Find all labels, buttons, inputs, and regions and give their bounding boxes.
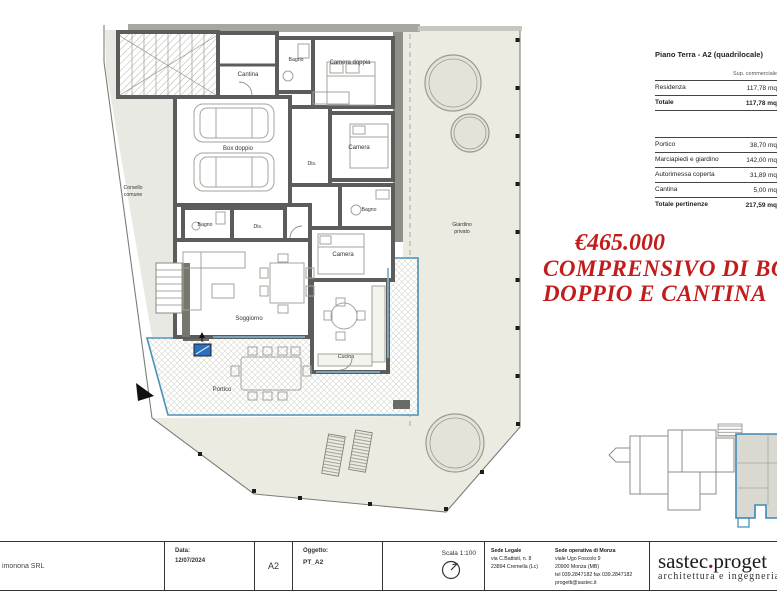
drawing-sheet: Cantina Bagno Camera doppia Box doppio C… bbox=[0, 0, 777, 600]
table-row: Marciapiedi e giardino 142,00 mq bbox=[655, 153, 777, 168]
date-label: Data: bbox=[175, 548, 254, 554]
date-value: 12/07/2024 bbox=[175, 558, 254, 564]
sede-legale: Sede Legale via C.Battisti, n. 8 23894 C… bbox=[491, 547, 555, 590]
table-row: Residenza 117,78 mq bbox=[655, 81, 777, 96]
garden-wall-band bbox=[418, 26, 522, 31]
company-logo: sastec.proget bbox=[658, 551, 777, 571]
price-amount: €465.000 bbox=[575, 231, 777, 256]
room-dis-right bbox=[290, 107, 330, 185]
scale-cell: Scala 1:100 bbox=[383, 542, 485, 590]
label-cucina: Cucina bbox=[338, 354, 354, 360]
sede-operativa: Sede operativa di Monza viale Ugo Foscol… bbox=[555, 547, 638, 590]
label-camera-low: Camera bbox=[332, 252, 354, 258]
table-row: Autorimessa coperta 31,89 mq bbox=[655, 168, 777, 183]
north-arrow bbox=[136, 383, 154, 401]
label-corsello-2: comune bbox=[124, 192, 143, 198]
object-value: PT_A2 bbox=[303, 559, 382, 566]
key-plan bbox=[609, 424, 777, 527]
room-soggiorno bbox=[175, 240, 310, 337]
label-dis-right: Dis. bbox=[308, 161, 317, 167]
label-camera-right: Camera bbox=[348, 145, 370, 151]
date-cell: Data: 12/07/2024 bbox=[165, 542, 255, 590]
company-tagline: architettura e ingegneria bbox=[658, 571, 777, 582]
label-bagno-mid: Bagno bbox=[197, 222, 212, 228]
sheet-cell: A2 bbox=[255, 542, 293, 590]
logo-cell: sastec.proget architettura e ingegneria bbox=[650, 542, 777, 590]
stairwell-hatch bbox=[120, 34, 216, 95]
sede-legale-title: Sede Legale bbox=[491, 547, 549, 555]
kitchen-counter bbox=[372, 286, 385, 362]
object-label: Oggetto: bbox=[303, 548, 382, 554]
scale-label: Scala 1:100 bbox=[383, 550, 476, 557]
table-row: Totale 117,78 mq bbox=[655, 96, 777, 111]
north-arrow-icon bbox=[383, 559, 462, 583]
client-name: imonona SRL bbox=[2, 563, 44, 570]
table-row: Portico 38,70 mq bbox=[655, 137, 777, 153]
area-table: Piano Terra - A2 (quadrilocale) Sup. com… bbox=[655, 50, 777, 212]
label-cantina: Cantina bbox=[238, 72, 259, 78]
key-plan-unit bbox=[736, 434, 777, 518]
label-camera-doppia: Camera doppia bbox=[329, 60, 371, 66]
label-box-doppio: Box doppio bbox=[223, 146, 254, 152]
label-giardino-2: privato bbox=[454, 229, 470, 235]
client-cell: imonona SRL bbox=[0, 542, 165, 590]
table-col-header: Sup. commerciale bbox=[655, 71, 777, 81]
label-corsello-1: Corsello bbox=[123, 185, 142, 191]
object-cell: Oggetto: PT_A2 bbox=[293, 542, 383, 590]
company-address-cell: Sede Legale via C.Battisti, n. 8 23894 C… bbox=[485, 542, 650, 590]
label-portico: Portico bbox=[213, 387, 232, 393]
label-bagno-right: Bagno bbox=[361, 207, 376, 213]
sede-operativa-title: Sede operativa di Monza bbox=[555, 547, 632, 555]
table-title: Piano Terra - A2 (quadrilocale) bbox=[655, 50, 777, 59]
room-bagno-top bbox=[277, 38, 313, 92]
label-bagno-top: Bagno bbox=[288, 57, 303, 63]
label-giardino-1: Giardino bbox=[452, 222, 472, 228]
table-row: Totale pertinenze 217,59 mq bbox=[655, 198, 777, 212]
table-row: Cantina 5,00 mq bbox=[655, 183, 777, 198]
price-annotation: €465.000 COMPRENSIVO DI BOX DOPPIO E CAN… bbox=[543, 231, 777, 306]
label-soggiorno: Soggiorno bbox=[235, 316, 263, 322]
title-block: imonona SRL Data: 12/07/2024 A2 Oggetto:… bbox=[0, 541, 777, 591]
price-line-2: COMPRENSIVO DI BOX bbox=[543, 256, 777, 281]
label-dis-mid: Dis. bbox=[254, 224, 263, 230]
sheet-code: A2 bbox=[268, 561, 279, 571]
price-line-3: DOPPIO E CANTINA bbox=[543, 281, 777, 306]
